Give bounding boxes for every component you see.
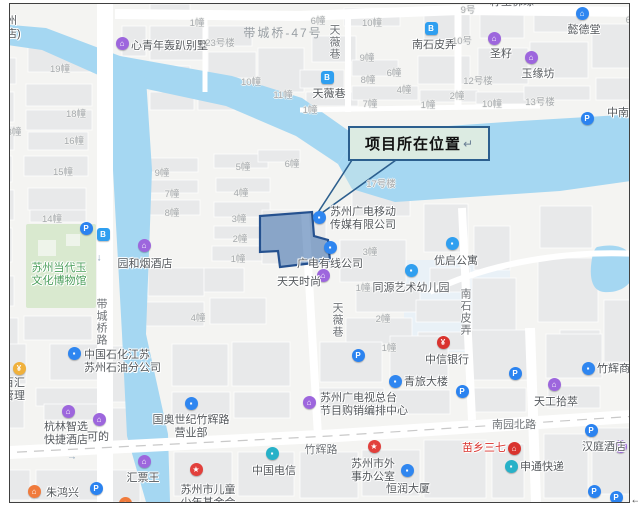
poi-text: 懿德堂 [568,24,601,37]
poi-text: 苏州市外事办公室 [351,458,395,484]
poi-text: 中国石化江苏苏州石油分公司 [84,349,161,375]
poi-icon: ¥ [437,336,450,349]
map-poi-label: 苏州广电移动传媒有限公司 [330,206,396,232]
map-poi-label: 苏州市儿童少年基金会 [181,484,236,503]
road-label: 竹辉路 [305,441,338,457]
paragraph-return-mark: ← [630,492,638,506]
area-label: 带城桥-47号 [243,24,322,41]
map-poi-label: 中南钻 [607,107,630,120]
document-page: ⌂心青年轰趴别墅B南石皮弄⌂圣籽⌂玉缘坊⌂懿德堂B天薇巷⌂中南钻刘籽玉佛缘苏州酒… [0,0,638,510]
building-label: 1幢 [382,340,397,354]
poi-text: 信百汇产管理 [9,377,25,403]
map-poi-label: 圣籽 [490,48,512,61]
building-label: 9幢 [155,165,170,179]
poi-icon: ⌂ [525,51,538,64]
building-label: 1幢 [231,251,246,265]
building-label: 4幢 [397,82,412,96]
building-label: 19幢 [50,61,70,75]
building-label: 7幢 [363,96,378,110]
building-label: 4幢 [234,185,249,199]
callout-return-mark: ↵ [463,137,473,151]
map-poi-label: 苏州市外事办公室 [351,458,395,484]
poi-text: 同源艺术幼儿园 [373,282,450,295]
poi-text: 苏州广电移动传媒有限公司 [330,206,396,232]
building-label: 10幢 [241,74,261,88]
map-poi-label: 懿德堂 [568,24,601,37]
map-canvas: ⌂心青年轰趴别墅B南石皮弄⌂圣籽⌂玉缘坊⌂懿德堂B天薇巷⌂中南钻刘籽玉佛缘苏州酒… [9,3,630,503]
building-label: 13号楼 [525,94,555,108]
poi-text: 苏州广电视总台节目购销编排中心 [320,392,408,418]
parking-icon: P [585,424,598,437]
parking-icon: P [456,385,469,398]
parking-icon: P [581,112,594,125]
poi-text: 汇票王 [127,472,160,485]
poi-text: 中信银行 [425,354,469,367]
poi-text: 青旅大楼 [404,376,448,389]
map-poi-label: 杭林智选快捷酒店 [44,421,88,447]
poi-text: 天天时尚 [277,276,321,289]
poi-text: 园和烟酒店 [118,258,173,271]
building-label: 6幢 [285,156,300,170]
poi-text: 申通快递 [520,461,564,474]
poi-text: 竹辉商厦 [597,363,630,376]
building-label: 9号 [461,3,476,16]
map-poi-label: 园和烟酒店 [118,258,173,271]
road-label: 南园北路 [492,416,536,432]
parking-icon: P [80,222,93,235]
poi-text: 中国电信 [252,465,296,478]
map-poi-label: 苏州酒店) [9,15,21,41]
poi-icon: ▪ [324,241,337,254]
poi-icon: ¥ [13,362,26,375]
building-label: 12号楼 [463,73,493,87]
building-label: 3幢 [363,244,378,258]
poi-icon: ★ [368,440,381,453]
poi-icon: ▪ [266,447,279,460]
map-poi-label: 天天时尚 [277,276,321,289]
poi-text: 中南钻 [607,107,630,120]
poi-icon: ⌂ [138,239,151,252]
map-poi-label: 恒润大厦 [386,483,430,496]
poi-text: 广电有线公司 [297,258,363,271]
map-poi-label: 青旅大楼 [404,376,448,389]
poi-text: 苏州酒店) [9,15,21,41]
building-label: 8幢 [165,205,180,219]
poi-icon: ⌂ [62,405,75,418]
building-label: 3幢 [9,124,21,138]
building-label: 11幢 [273,87,292,101]
poi-text: 可的 [87,431,109,444]
poi-text: 汉庭酒店 [582,441,626,454]
map-poi-label: 竹辉商厦 [597,363,630,376]
parking-icon: P [588,485,601,498]
map-poi-label: 玉缘坊 [522,68,555,81]
poi-icon: ▪ [446,237,459,250]
map-poi-label: 苗乡三七 [462,442,506,455]
building-label: 1幢 [303,102,318,116]
poi-icon: ▪ [185,397,198,410]
building-label: 2幢 [450,88,465,102]
poi-text: 国奥世纪竹辉路营业部 [153,414,230,440]
poi-icon: ▪ [582,362,595,375]
building-label: 5幢 [236,159,251,173]
map-poi-label: 籽玉佛缘 [490,3,534,9]
poi-icon: ⌂ [548,378,561,391]
building-label: 10幢 [482,96,502,110]
poi-text: 籽玉佛缘 [490,3,534,9]
poi-icon: ⌂ [119,497,132,504]
project-location-callout: 项目所在位置 ↵ [348,126,490,161]
map-poi-label: 汉庭酒店 [582,441,626,454]
building-label: 3幢 [232,211,247,225]
map-poi-label: 可的 [87,431,109,444]
road-label: 天薇巷 [326,24,342,60]
poi-text: 天薇巷 [313,88,346,101]
parking-icon: P [509,367,522,380]
map-poi-label: 天薇巷 [313,88,346,101]
map-poi-label: 中国石化江苏苏州石油分公司 [84,349,161,375]
building-label: 1幢 [190,15,205,29]
poi-icon: ▪ [68,347,81,360]
road-direction-arrow: → [67,452,77,463]
building-label: 1幢 [421,97,436,111]
parking-icon: P [610,491,623,504]
map-figure[interactable]: ⌂心青年轰趴别墅B南石皮弄⌂圣籽⌂玉缘坊⌂懿德堂B天薇巷⌂中南钻刘籽玉佛缘苏州酒… [9,3,630,503]
map-poi-label: 天工拾萃 [534,396,578,409]
building-label: 10幢 [362,15,382,29]
map-labels: ⌂心青年轰趴别墅B南石皮弄⌂圣籽⌂玉缘坊⌂懿德堂B天薇巷⌂中南钻刘籽玉佛缘苏州酒… [9,3,630,503]
poi-text: 朱鸿兴 [46,487,79,500]
map-poi-label: 汇票王 [127,472,160,485]
road-label: 天薇巷 [329,302,345,338]
map-poi-label: 朱鸿兴 [46,487,79,500]
map-poi-label: 中国电信 [252,465,296,478]
building-label: 6幢 [626,12,630,26]
poi-text: 恒润大厦 [386,483,430,496]
poi-text: 苏州当代玉文化博物馆 [32,262,87,288]
building-label: 2幢 [376,311,391,325]
poi-text: 圣籽 [490,48,512,61]
poi-text: 苗乡三七 [462,442,506,455]
poi-icon: ⌂ [508,442,521,455]
building-label: 9幢 [360,50,375,64]
map-poi-label: 广电有线公司 [297,258,363,271]
poi-icon: B [425,22,438,35]
map-poi-label: 申通快递 [520,461,564,474]
map-poi-label: 中信银行 [425,354,469,367]
building-label: 23号楼 [205,35,235,49]
map-poi-label: 国奥世纪竹辉路营业部 [153,414,230,440]
bus-stop-icon: B [97,228,110,241]
map-poi-label: 优启公寓 [434,255,478,268]
parking-icon: P [352,349,365,362]
poi-icon: ▪ [401,464,414,477]
map-poi-label: 心青年轰趴别墅 [131,40,208,53]
map-poi-label: 信百汇产管理 [9,377,25,403]
poi-icon: ⌂ [630,94,631,107]
poi-icon: ⌂ [28,485,41,498]
road-label: 带城桥路 [93,298,109,346]
poi-icon: ▪ [389,375,402,388]
poi-icon: ⌂ [488,32,501,45]
building-label: 7幢 [165,186,180,200]
poi-text: 天工拾萃 [534,396,578,409]
building-label: 2幢 [233,231,248,245]
map-poi-label: 同源艺术幼儿园 [373,282,450,295]
poi-icon: ▪ [313,211,326,224]
building-label: 15幢 [53,164,73,178]
poi-text: 玉缘坊 [522,68,555,81]
building-label: 1幢 [356,280,371,294]
building-label: 16幢 [64,133,84,147]
poi-icon: ⌂ [138,455,151,468]
poi-icon: ⌂ [116,37,129,50]
poi-text: 心青年轰趴别墅 [131,40,208,53]
building-label: 14幢 [42,211,62,225]
poi-icon: B [321,71,334,84]
poi-icon: ▪ [405,264,418,277]
poi-icon: ⌂ [93,413,106,426]
poi-text: 南石皮弄 [412,39,456,52]
poi-text: 优启公寓 [434,255,478,268]
building-label: 17号楼 [366,176,396,190]
poi-icon: ⌂ [303,396,316,409]
building-label: 6幢 [387,65,402,79]
map-poi-label: 南石皮弄 [412,39,456,52]
road-label: 南石皮弄 [457,288,473,336]
road-direction-arrow: ↓ [97,253,102,264]
building-label: 18幢 [66,106,86,120]
building-label: 10号 [452,33,472,47]
parking-icon: P [90,482,103,495]
map-poi-label: 苏州广电视总台节目购销编排中心 [320,392,408,418]
callout-text: 项目所在位置 [365,133,461,154]
poi-text: 杭林智选快捷酒店 [44,421,88,447]
poi-icon: ★ [190,463,203,476]
poi-icon: ▪ [505,460,518,473]
building-label: 8幢 [361,72,376,86]
map-poi-label: 苏州当代玉文化博物馆 [32,262,87,288]
poi-icon: ⌂ [576,7,589,20]
poi-text: 苏州市儿童少年基金会 [181,484,236,503]
building-label: 4幢 [191,310,206,324]
